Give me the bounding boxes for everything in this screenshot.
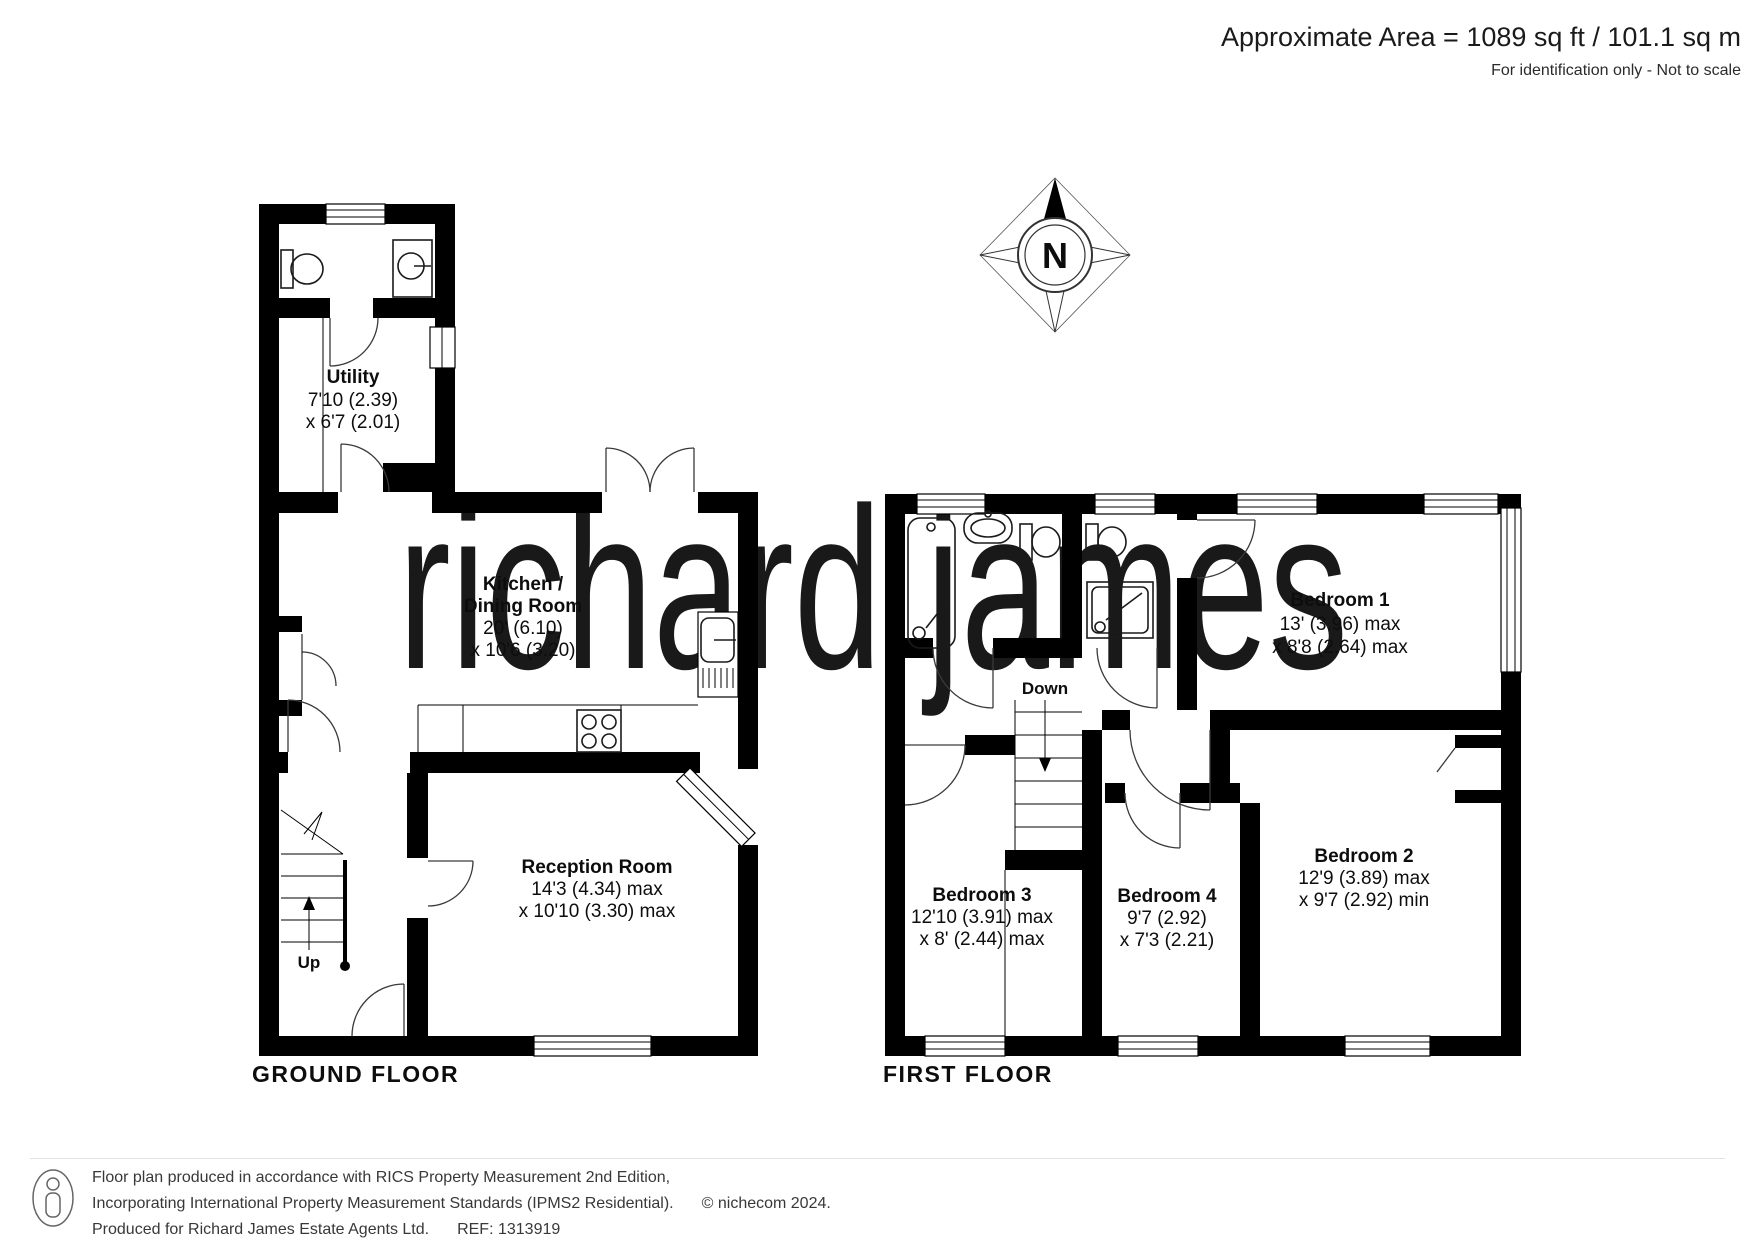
room-label-reception: Reception Room 14'3 (4.34) max x 10'10 (… xyxy=(519,857,676,922)
floor-plan-canvas: richard james xyxy=(0,0,1755,1241)
kitchen-name1: Kitchen / xyxy=(483,574,564,595)
window-bedroom1-top xyxy=(1237,494,1317,514)
bedroom1-dim2: x 8'8 (2.64) max xyxy=(1272,637,1408,658)
utility-name: Utility xyxy=(327,367,380,388)
kitchen-dim2: x 10'6 (3.20) xyxy=(470,640,575,661)
room-label-utility: Utility 7'10 (2.39) x 6'7 (2.01) xyxy=(306,367,400,433)
bedroom1-name: Bedroom 1 xyxy=(1290,590,1390,611)
window-wc-top xyxy=(1095,494,1155,514)
window-utility-side xyxy=(430,327,455,368)
footer-text: Floor plan produced in accordance with R… xyxy=(92,1165,831,1241)
footer-line-1: Floor plan produced in accordance with R… xyxy=(92,1165,831,1191)
window-bedroom1-side xyxy=(1501,508,1521,672)
footer-line-2-main: Incorporating International Property Mea… xyxy=(92,1195,674,1212)
bedroom4-name: Bedroom 4 xyxy=(1117,886,1217,907)
toilet-fixture-ground xyxy=(281,250,323,288)
footer-ref: REF: 1313919 xyxy=(457,1221,560,1238)
down-arrow-icon xyxy=(1039,758,1051,772)
kitchen-dim1: 20' (6.10) xyxy=(483,618,563,639)
window-reception-bottom xyxy=(534,1036,651,1056)
footer-copyright: © nichecom 2024. xyxy=(702,1195,831,1212)
stairs-first xyxy=(1015,700,1082,850)
bedroom2-dim2: x 9'7 (2.92) min xyxy=(1299,890,1429,911)
north-compass: N xyxy=(980,178,1130,332)
bedroom3-dim2: x 8' (2.44) max xyxy=(919,929,1045,950)
kitchen-sink-fixture xyxy=(698,612,738,697)
bedroom4-dim2: x 7'3 (2.21) xyxy=(1120,930,1214,951)
room-label-bedroom1: Bedroom 1 13' (3.96) max x 8'8 (2.64) ma… xyxy=(1272,590,1408,658)
bedroom3-name: Bedroom 3 xyxy=(932,885,1031,906)
utility-dim2: x 6'7 (2.01) xyxy=(306,412,400,433)
window-bedroom4-bottom xyxy=(1118,1036,1198,1056)
sink-fixture-ground-wc xyxy=(393,240,432,297)
reception-dim1: 14'3 (4.34) max xyxy=(531,879,663,900)
footer-line-2: Incorporating International Property Mea… xyxy=(92,1191,831,1217)
bedroom3-dim1: 12'10 (3.91) max xyxy=(911,907,1053,928)
room-label-bedroom3: Bedroom 3 12'10 (3.91) max x 8' (2.44) m… xyxy=(911,885,1053,950)
bedroom1-dim1: 13' (3.96) max xyxy=(1280,614,1401,635)
footer-line-3: Produced for Richard James Estate Agents… xyxy=(92,1217,831,1241)
window-bedroom1-top2 xyxy=(1424,494,1498,514)
footer-produced-for: Produced for Richard James Estate Agents… xyxy=(92,1221,429,1238)
person-icon xyxy=(30,1167,76,1229)
reception-name: Reception Room xyxy=(522,857,673,878)
room-label-bedroom2: Bedroom 2 12'9 (3.89) max x 9'7 (2.92) m… xyxy=(1298,846,1430,911)
window-wc-top xyxy=(326,204,385,224)
bedroom2-name: Bedroom 2 xyxy=(1314,846,1413,867)
room-label-bedroom4: Bedroom 4 9'7 (2.92) x 7'3 (2.21) xyxy=(1117,886,1217,951)
floor-title-ground: GROUND FLOOR xyxy=(252,1061,459,1087)
window-reception-bay xyxy=(677,768,755,846)
window-bedroom3-bottom xyxy=(925,1036,1005,1056)
utility-dim1: 7'10 (2.39) xyxy=(308,390,398,411)
compass-north-label: N xyxy=(1042,235,1068,276)
kitchen-name2: Dining Room xyxy=(464,596,582,617)
floorplan-page: Approximate Area = 1089 sq ft / 101.1 sq… xyxy=(0,0,1755,1241)
window-bathroom-top xyxy=(917,494,985,514)
chimney-flap-line xyxy=(1437,748,1455,772)
up-label: Up xyxy=(298,953,321,972)
window-bedroom2-bottom xyxy=(1345,1036,1430,1056)
reception-dim2: x 10'10 (3.30) max xyxy=(519,901,676,922)
bedroom2-dim1: 12'9 (3.89) max xyxy=(1298,868,1430,889)
stairs-ground xyxy=(281,810,350,971)
down-label: Down xyxy=(1022,679,1068,698)
bedroom4-dim1: 9'7 (2.92) xyxy=(1127,908,1207,929)
floor-title-first: FIRST FLOOR xyxy=(883,1061,1053,1087)
footer: Floor plan produced in accordance with R… xyxy=(30,1158,1725,1241)
